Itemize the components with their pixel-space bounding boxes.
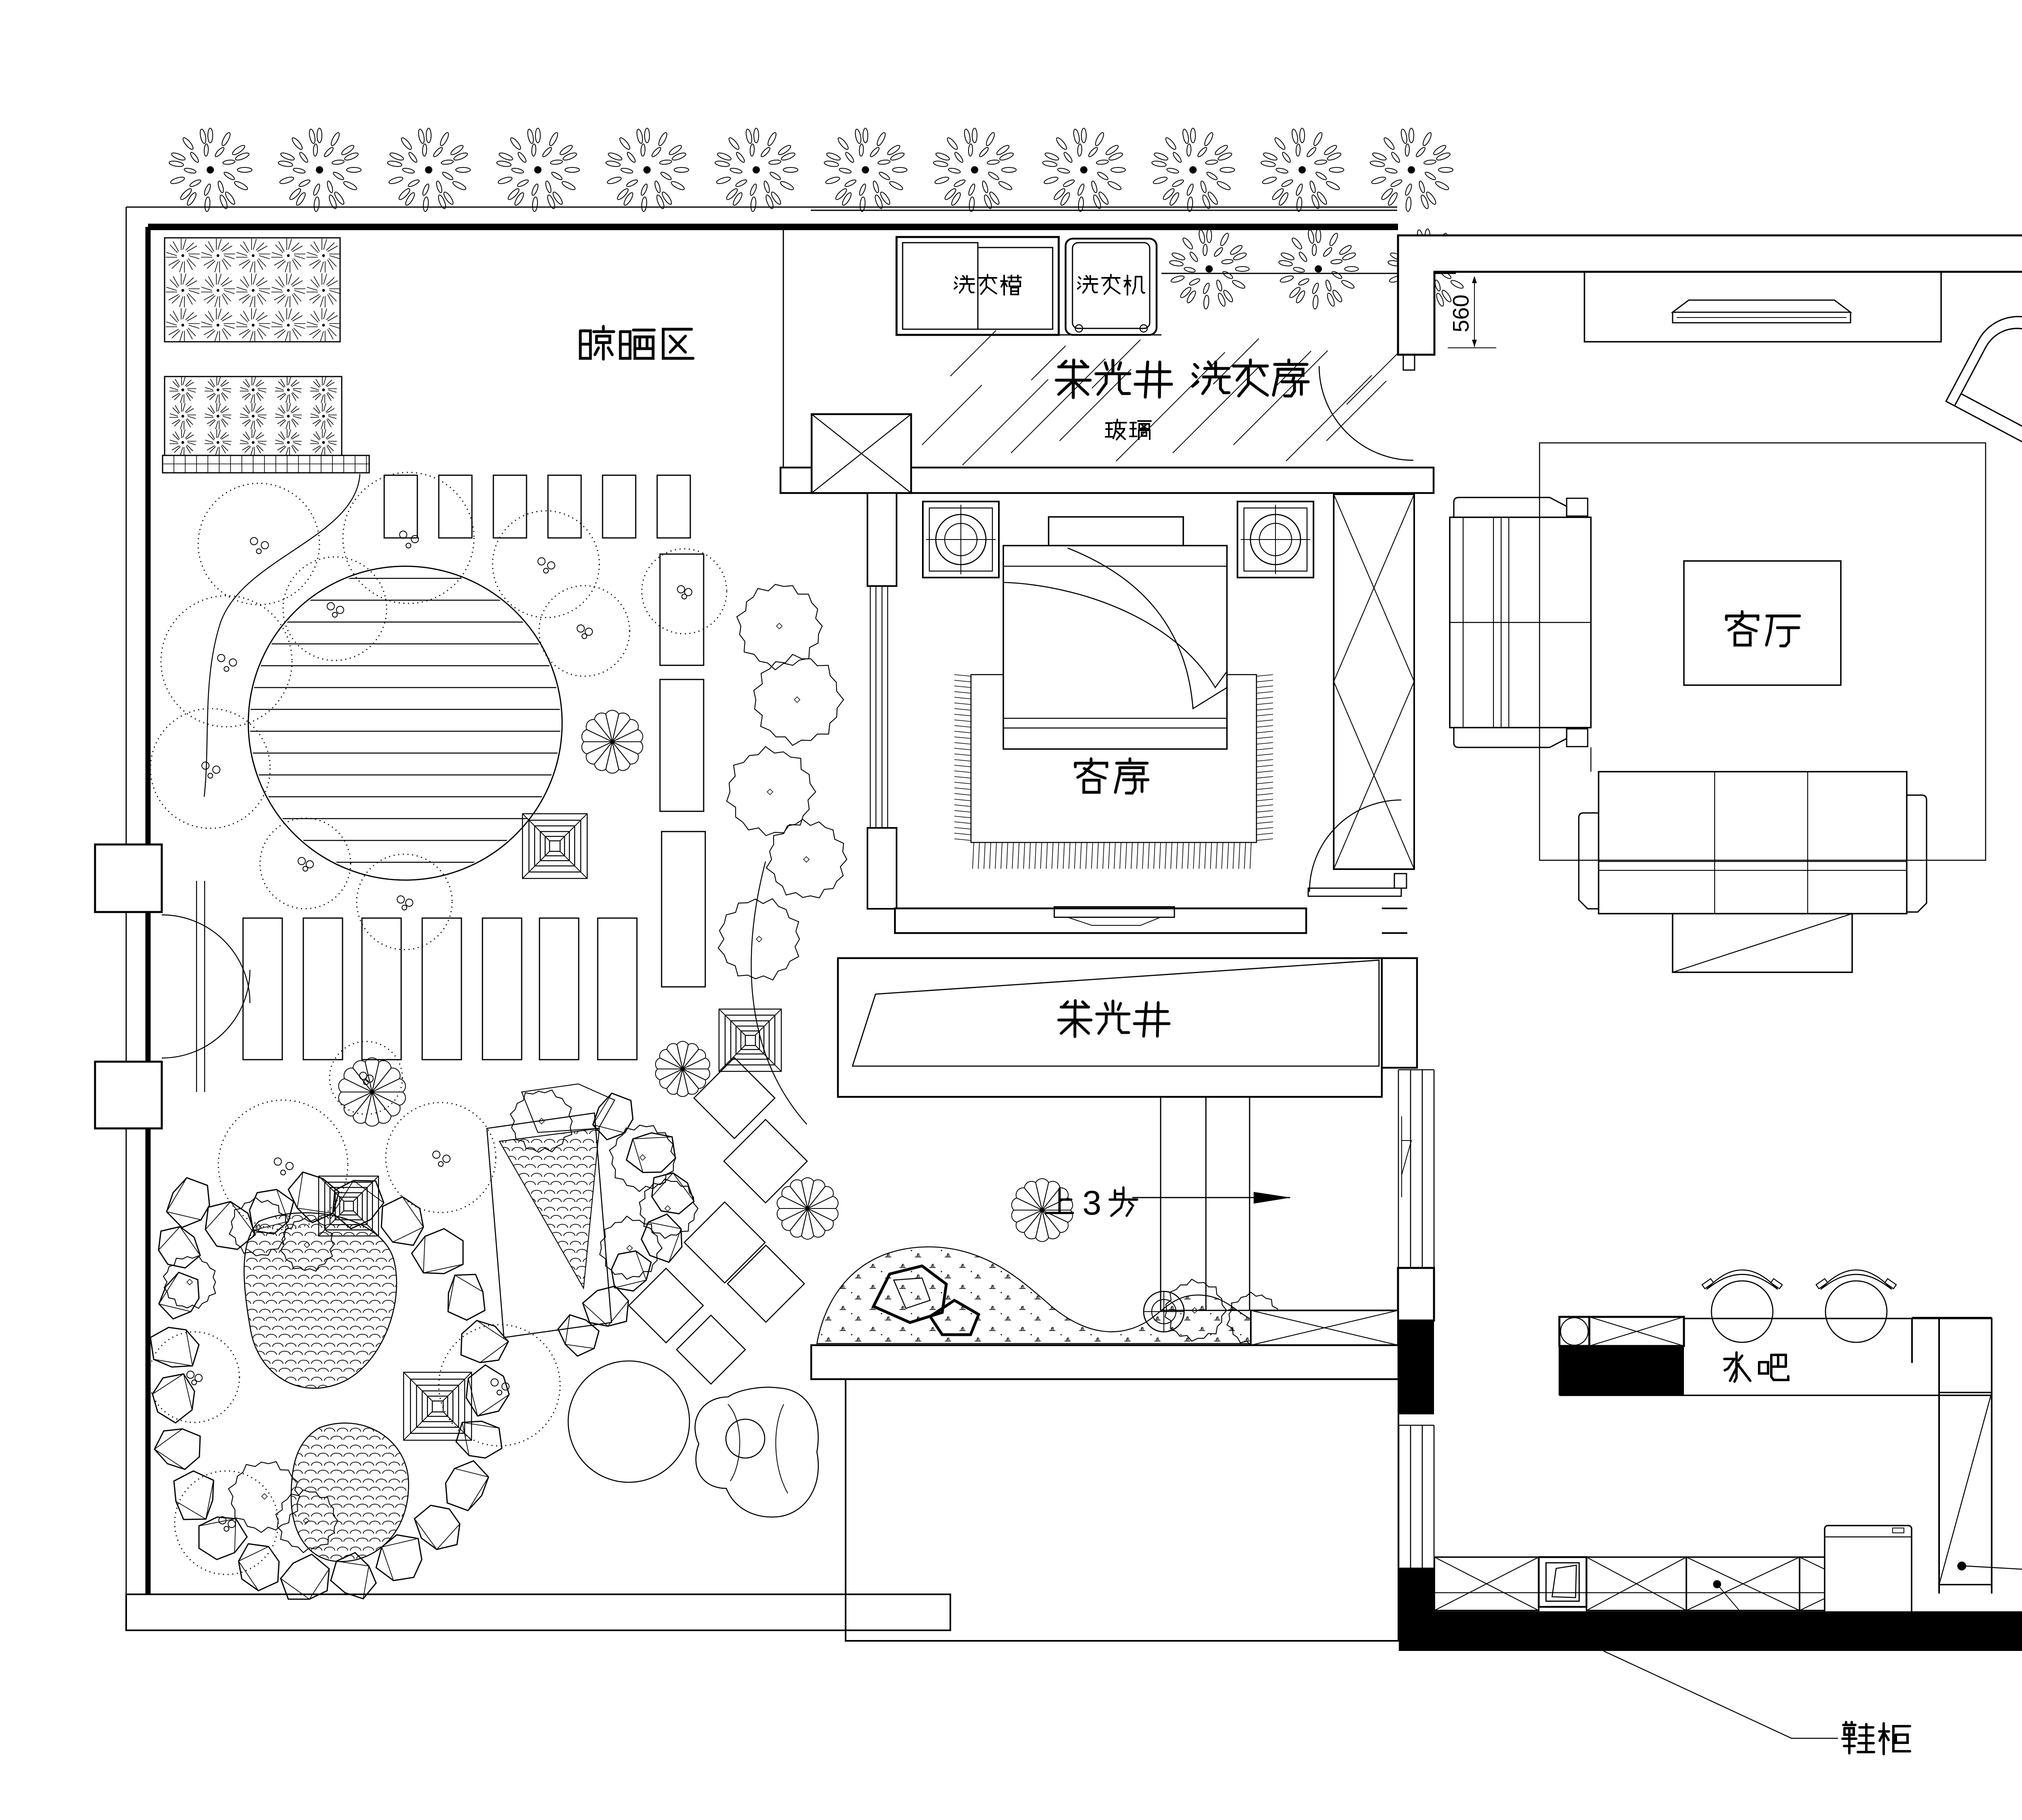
svg-text:560: 560 (1448, 294, 1474, 332)
svg-text:3: 3 (1083, 1184, 1102, 1222)
